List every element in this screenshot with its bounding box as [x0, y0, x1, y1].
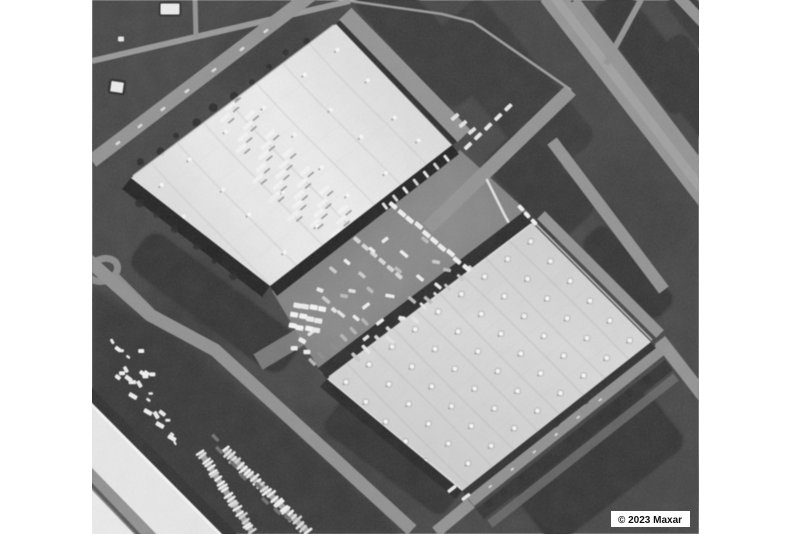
svg-text:© 2023 Maxar: © 2023 Maxar [618, 515, 682, 526]
